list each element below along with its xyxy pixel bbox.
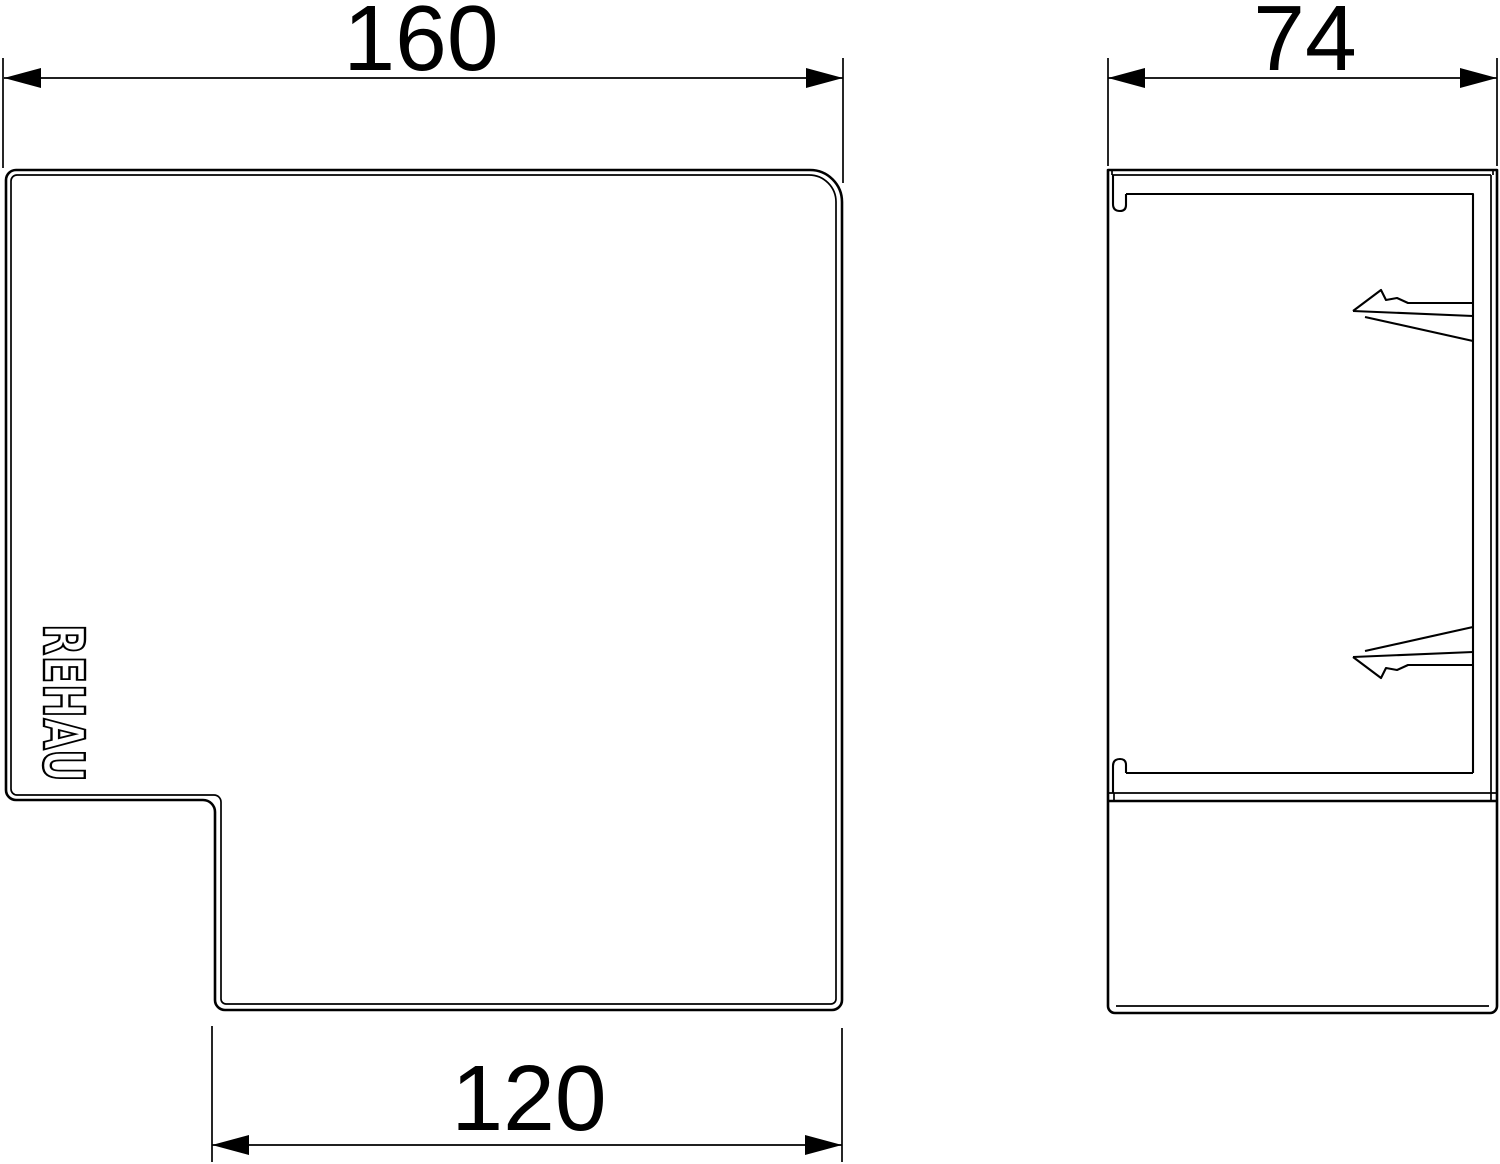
technical-drawing: REHAU [0, 0, 1500, 1164]
latch-lower-finger [1353, 652, 1473, 657]
top-hook-profile [1113, 175, 1126, 211]
rehau-logo: REHAU [30, 624, 95, 783]
clip-latch-lower [1353, 627, 1473, 678]
dimension-label-160: 160 [343, 0, 498, 90]
side-view-inner-cavity [1126, 194, 1473, 773]
latch-upper-barb [1353, 290, 1473, 311]
arrowhead-left [212, 1135, 249, 1155]
dimension-front-lower-width: 120 [212, 1026, 842, 1162]
bottom-hook-profile [1113, 759, 1126, 793]
front-view-inner-edge [11, 175, 836, 1004]
dimension-front-overall-width: 160 [3, 0, 843, 183]
arrowhead-right [805, 1135, 842, 1155]
front-view: REHAU [6, 170, 842, 1010]
arrowhead-right [1460, 68, 1497, 88]
arrowhead-right [806, 68, 843, 88]
dimension-label-74: 74 [1253, 0, 1356, 90]
latch-lower-barb [1353, 657, 1473, 678]
dimension-side-depth: 74 [1108, 0, 1497, 166]
latch-lower-spring-leg [1365, 627, 1473, 651]
front-view-outer-outline [6, 170, 842, 1010]
side-view [1108, 170, 1497, 1013]
dimension-label-120: 120 [451, 1046, 606, 1150]
clip-latch-upper [1353, 290, 1473, 341]
latch-upper-finger [1353, 311, 1473, 316]
latch-upper-spring-leg [1365, 317, 1473, 341]
arrowhead-left [1108, 68, 1145, 88]
drawing-canvas: REHAU [0, 0, 1500, 1164]
arrowhead-left [4, 68, 41, 88]
side-view-outer-outline [1108, 170, 1497, 1013]
